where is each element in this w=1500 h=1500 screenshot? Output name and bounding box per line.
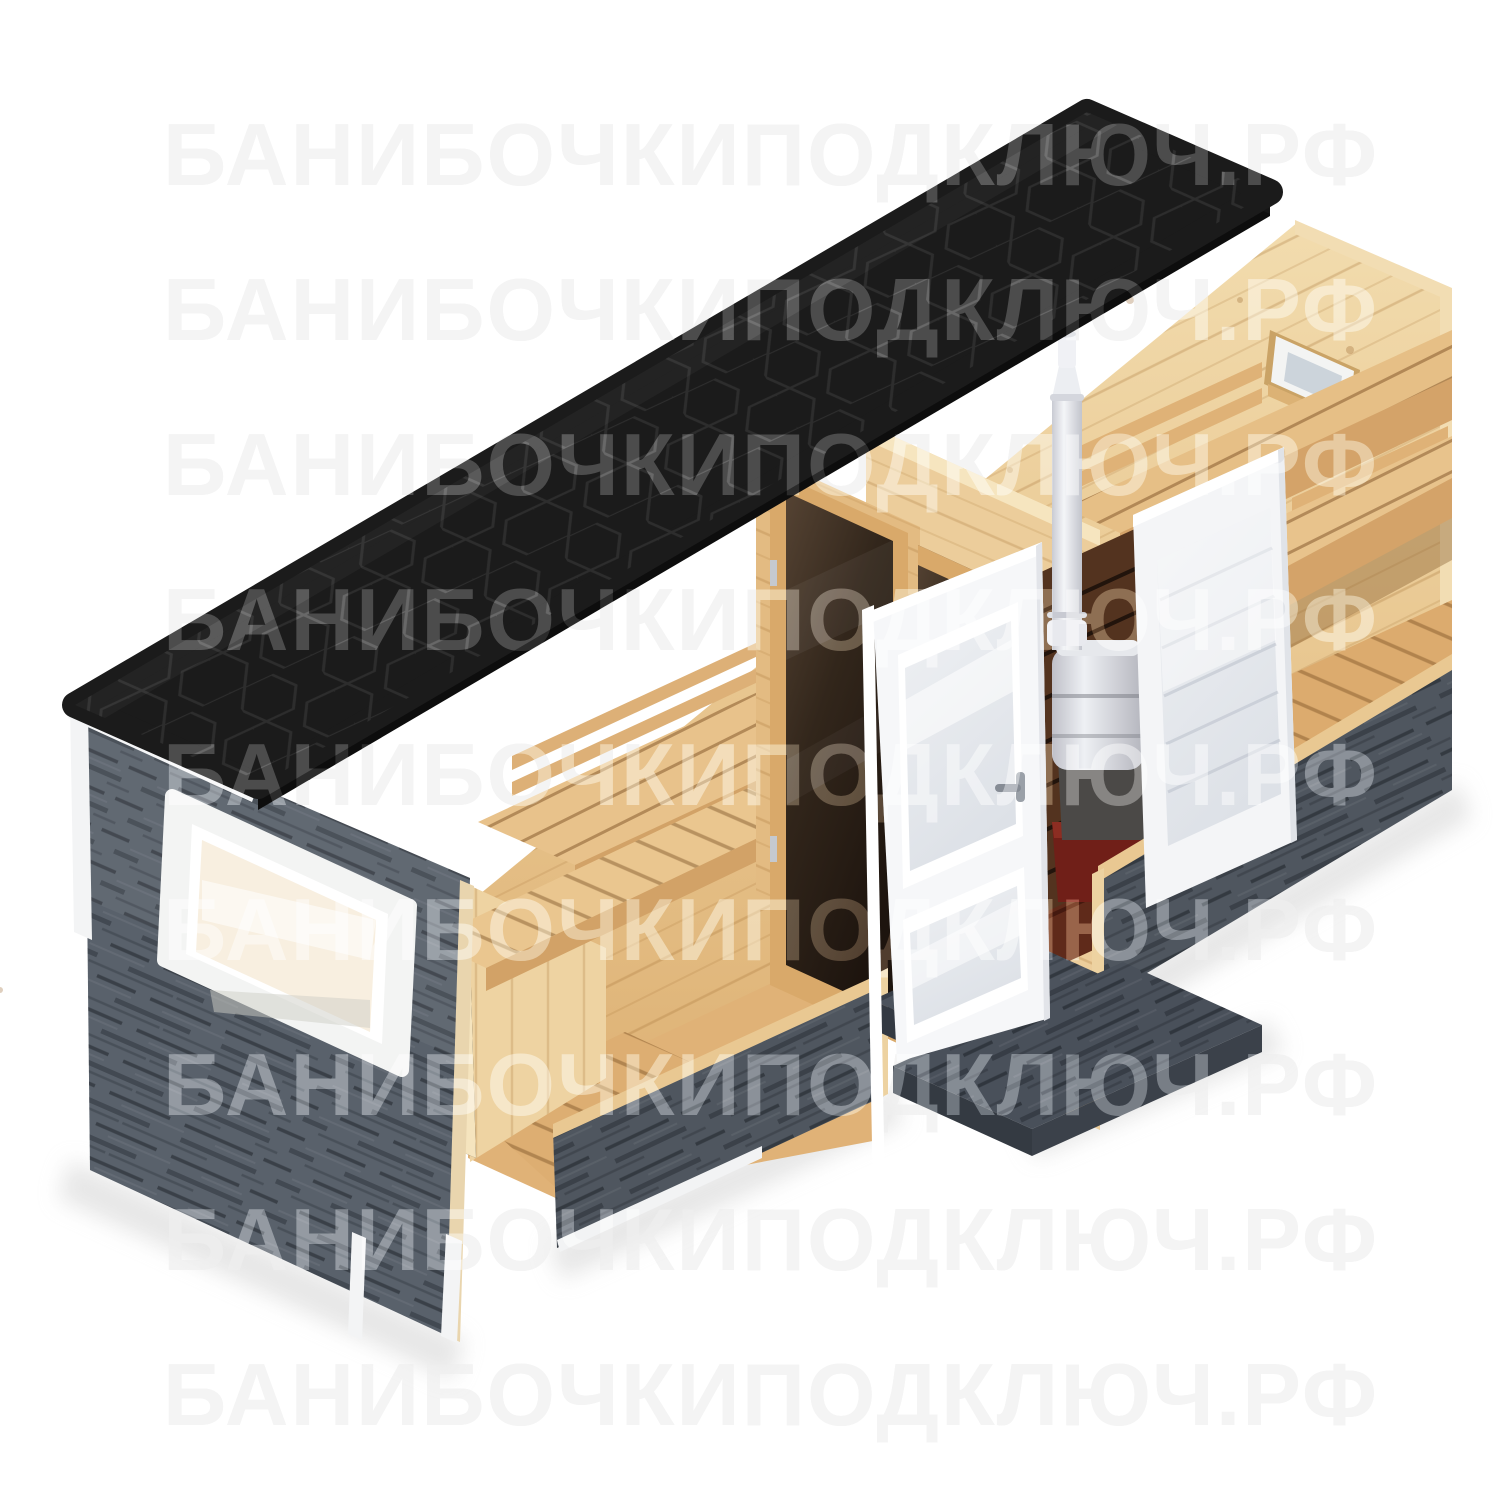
steam-door xyxy=(1133,447,1297,908)
sauna-render xyxy=(0,0,1500,1500)
chimney xyxy=(1047,331,1087,651)
stove-body xyxy=(1052,648,1144,770)
stove-stone-box xyxy=(1058,758,1146,840)
product-image-canvas: БАНИБОЧКИПОДКЛЮЧ.РФ БАНИБОЧКИПОДКЛЮЧ.РФ … xyxy=(0,0,1500,1500)
